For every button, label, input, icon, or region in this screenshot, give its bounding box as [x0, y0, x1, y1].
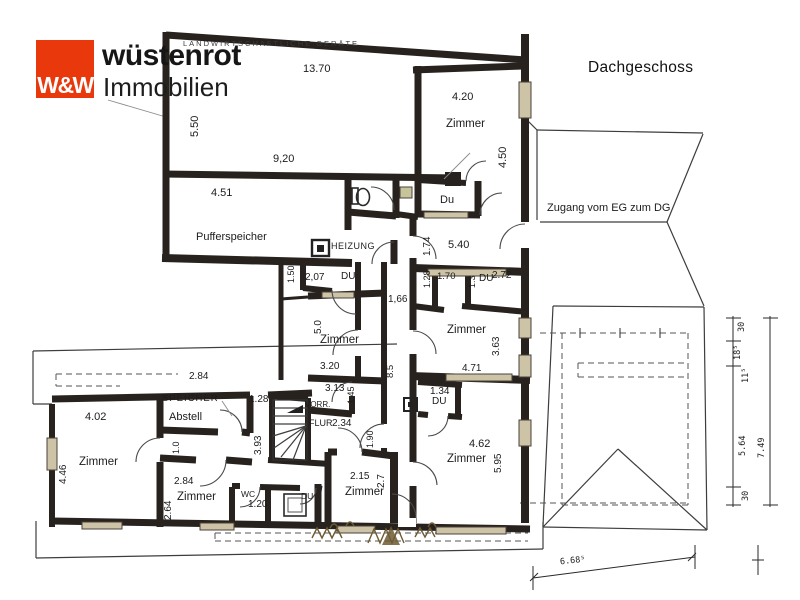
dim-1-74: 1.74 — [423, 237, 433, 256]
dim-9-20: 9,20 — [273, 154, 294, 165]
staircase — [273, 400, 307, 460]
room-label-zimmer-left: Zimmer — [79, 457, 118, 469]
dim-1-50: 1.50 — [287, 265, 296, 283]
room-label-du-c: DU — [432, 397, 446, 407]
brand-suffix: Immobilien — [103, 74, 229, 100]
dim-1-90: 1.90 — [366, 430, 375, 448]
dim-4-02: 4.02 — [85, 412, 106, 423]
room-label-zugang: Zugang vom EG zum DG — [547, 203, 671, 214]
dim-8-5: 8.5 — [386, 365, 396, 378]
dim-5-0: 5.0 — [314, 320, 324, 334]
dim-chain-11-5: 11⁵ — [742, 368, 751, 383]
room-label-wc: WC — [241, 490, 255, 499]
room-label-zimmer-bottomcenter: Zimmer — [345, 487, 384, 499]
room-label-speicher: SPEICHER — [162, 394, 219, 404]
dim-1-3: 1.3 — [468, 275, 477, 288]
dim-2-64: 2.64 — [164, 501, 174, 520]
brand-logo-mark-text: W&W — [37, 73, 93, 98]
dim-1-0: 1.0 — [172, 441, 181, 454]
dim-2-07: 2,07 — [305, 273, 324, 283]
dim-4-50: 4.50 — [498, 147, 509, 168]
dim-chain-7-49: 7.49 — [758, 438, 767, 458]
room-label-zimmer-centerleft: Zimmer — [320, 335, 359, 347]
dim-3-13: 3.13 — [325, 384, 344, 394]
room-label-heizung: HEIZUNG — [331, 242, 375, 251]
dim-2-84-top: 2.84 — [189, 372, 208, 382]
room-label-zimmer-topright: Zimmer — [446, 119, 485, 131]
dim-2-15: 2.15 — [350, 472, 369, 482]
dim-4-20: 4.20 — [452, 92, 473, 103]
room-label-pufferspeicher: Pufferspeicher — [196, 232, 267, 243]
room-label-zimmer-bottomright: Zimmer — [447, 454, 486, 466]
room-label-du-a: DU — [341, 272, 355, 282]
room-label-geraete: LANDWIRTSCHAFTLICHE GERÄTE — [183, 40, 359, 48]
dim-1-20: 1.20 — [248, 500, 267, 510]
dim-3-20: 3.20 — [320, 362, 339, 372]
dim-4-51: 4.51 — [211, 188, 232, 199]
dim-5-95: 5.95 — [494, 454, 504, 473]
room-label-zimmer-centerright: Zimmer — [447, 325, 486, 337]
brand-logo-mark: W&W — [36, 40, 94, 98]
dim-1-34: 1.34 — [430, 387, 449, 397]
dim-4-46: 4.46 — [59, 465, 69, 484]
dim-4-62: 4.62 — [469, 439, 490, 450]
dim-1-28-v: 1.28 — [423, 270, 432, 288]
page-title: Dachgeschoss — [588, 60, 693, 76]
dim-13-70: 13.70 — [303, 64, 331, 75]
dim-1-45: 1.45 — [347, 386, 356, 404]
dim-3-93: 3.93 — [254, 436, 264, 455]
dim-4-71: 4.71 — [462, 364, 481, 374]
dim-chain-5-64: 5.64 — [739, 436, 748, 456]
dim-2-7: 2.7 — [377, 474, 387, 488]
dim-chain-30-bottom: 30 — [742, 491, 751, 501]
dim-3-63: 3.63 — [492, 337, 502, 356]
dim-5-50: 5.50 — [190, 116, 201, 137]
dim-chain-30-top: 30 — [738, 322, 747, 332]
room-label-abstell: Abstell — [169, 412, 202, 423]
dim-1-28-h: 1.28 — [249, 395, 268, 405]
floorplan-page: W&W wüstenrot Immobilien Dachgeschoss LA… — [0, 0, 800, 600]
room-label-zimmer-bottomsmall: Zimmer — [177, 492, 216, 504]
dim-5-40: 5.40 — [448, 240, 469, 251]
dim-chain-18-5: 18⁵ — [734, 345, 743, 360]
roof-structure — [520, 120, 707, 530]
room-label-vorratsraum: VORR. — [305, 401, 330, 409]
dim-2-72: 2.72 — [492, 271, 511, 281]
room-label-flur: FLUR — [309, 419, 333, 428]
dim-2-84-b: 2.84 — [174, 477, 193, 487]
windows — [47, 82, 531, 534]
room-label-du-d: DU — [301, 492, 313, 501]
dim-1-70: 1.70 — [437, 272, 456, 282]
dim-1-66: 1,66 — [388, 295, 407, 305]
dim-2-34: 2.34 — [332, 419, 351, 429]
room-label-du-topright: Du — [440, 195, 454, 206]
